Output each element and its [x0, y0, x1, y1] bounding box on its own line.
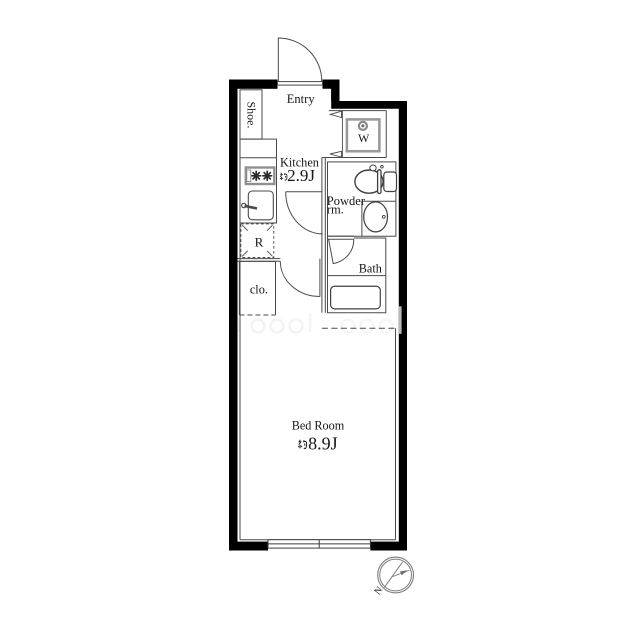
svg-text:R: R — [255, 235, 264, 250]
svg-text:W: W — [358, 131, 370, 145]
svg-text:Entry: Entry — [287, 92, 316, 106]
svg-text:Shoe.: Shoe. — [244, 102, 258, 129]
svg-text:rm.: rm. — [327, 203, 344, 217]
svg-text:Bed Room: Bed Room — [292, 418, 345, 432]
svg-text:8.9J: 8.9J — [308, 433, 338, 453]
svg-text:clo.: clo. — [250, 282, 268, 296]
svg-text:2.9J: 2.9J — [287, 166, 315, 185]
svg-text:Bath: Bath — [359, 262, 382, 276]
